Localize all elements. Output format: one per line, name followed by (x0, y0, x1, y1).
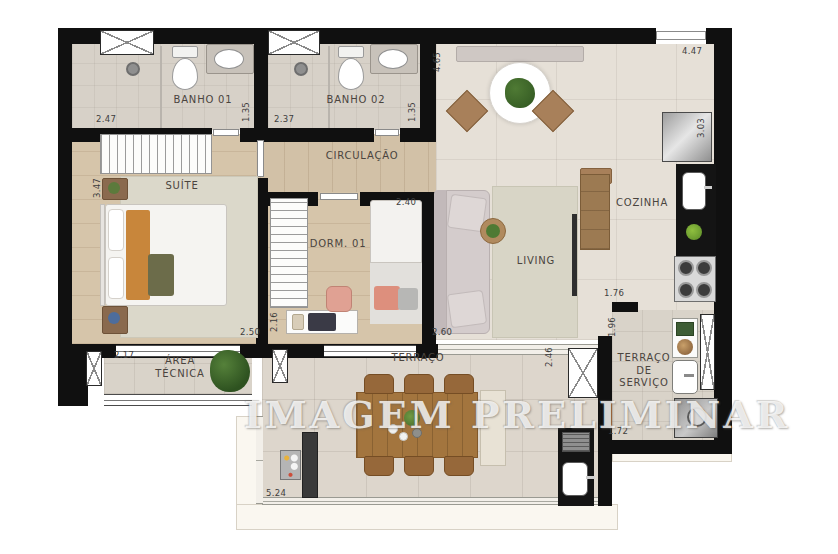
dim-suite-width: 2.50 (240, 327, 260, 337)
living-coffee-table-plant-icon (486, 224, 500, 238)
terrace-railing-bottom (262, 497, 598, 505)
suite-bed-runner-orange (126, 210, 150, 300)
stove-burner-1 (678, 260, 694, 276)
banho02-toilet-tank (338, 46, 364, 58)
wall-left (58, 28, 72, 346)
terraco-bbq-sink (562, 462, 588, 496)
banho02-shower-glass (328, 46, 330, 128)
servico-cutting-board (676, 322, 694, 336)
banho02-toilet-bowl (338, 58, 364, 90)
banho02-door (375, 129, 399, 136)
living-label: LIVING (517, 255, 555, 268)
wall-servico-bottom (612, 440, 732, 454)
suite-bed-pillow-top (108, 209, 124, 251)
banho01-shower-head-icon (126, 62, 140, 76)
preliminary-image-watermark: IMAGEM PRELIMINAR (244, 392, 724, 437)
banho02-window (268, 30, 320, 55)
dorm01-bed-pillow-gray (398, 288, 418, 310)
banho01-toilet-bowl (172, 58, 198, 90)
cozinha-stove (674, 256, 716, 302)
cozinha-label: COZINHA (616, 197, 668, 210)
living-console-bench (456, 46, 584, 62)
banho01-door (213, 129, 239, 136)
suite-nightstand-plant-icon (108, 182, 120, 194)
servico-basket-icon (677, 339, 693, 355)
dim-living-width: 2.60 (432, 327, 452, 337)
dim-suite-depth: 3.47 (92, 178, 102, 198)
dim-living-depth: 4.65 (432, 52, 442, 72)
dorm01-bed-pillow-salmon (374, 286, 400, 310)
suite-bed-pillow-olive (148, 254, 174, 296)
banho02-label: BANHO 02 (327, 94, 386, 107)
wall-right (714, 28, 732, 452)
terraco-chair-top-1 (364, 374, 394, 394)
dim-dorm01-depth: 2.16 (269, 312, 279, 332)
suite-door (257, 140, 264, 177)
area-tecnica-plant-icon (210, 350, 250, 392)
terraco-chair-bottom-1 (364, 456, 394, 476)
cozinha-sink (682, 172, 706, 210)
dim-terraco-width: 5.24 (266, 488, 286, 498)
terraco-grill-cabinet (302, 432, 318, 498)
entry-door (656, 31, 706, 40)
terrace-corner-window (272, 349, 288, 383)
banho02-shower-head-icon (294, 62, 308, 76)
terraco-label: TERRAÇO (391, 352, 444, 365)
dorm01-label: DORM. 01 (310, 238, 367, 251)
dim-banho01-depth: 1.35 (241, 102, 251, 122)
banho02-basin (378, 49, 408, 69)
area-tecnica-window (104, 394, 252, 406)
wall-banho02-living (420, 28, 436, 134)
dorm01-desk-bag (292, 314, 304, 330)
dim-banho01-width: 2.47 (96, 114, 116, 124)
dim-banho02-depth: 1.35 (407, 102, 417, 122)
dorm01-closet (270, 198, 308, 308)
terraco-bbq-faucet-icon (586, 476, 595, 479)
stove-burner-2 (696, 260, 712, 276)
living-table-plant-icon (505, 78, 535, 108)
banho01-window (100, 30, 154, 55)
wall-below-banho02 (400, 128, 436, 142)
cozinha-plant-icon (686, 224, 702, 240)
servico-tanque-faucet-icon (684, 374, 694, 377)
terraco-grill-panel (280, 450, 301, 480)
dorm01-laptop-icon (308, 313, 336, 331)
banho01-toilet-tank (172, 46, 198, 58)
dim-cozinha-side: 1.96 (607, 317, 617, 337)
dorm01-door (320, 193, 358, 200)
floor-plan: BANHO 01 BANHO 02 CIRCULAÇÃO SUÍTE DORM.… (0, 0, 838, 554)
dim-area-tecnica-width: 2.17 (114, 350, 134, 360)
wall-cozinha-servico-stub (612, 302, 638, 312)
suite-wardrobe (100, 134, 212, 174)
banho01-shower-glass (160, 46, 162, 128)
living-sofa-cushion-bottom (447, 290, 487, 329)
terraco-chair-top-3 (444, 374, 474, 394)
servico-washer-topview (700, 314, 715, 390)
banho01-label: BANHO 01 (174, 94, 233, 107)
suite-label: SUÍTE (165, 180, 198, 193)
dim-banho02-width: 2.37 (274, 114, 294, 124)
terraco-chair-top-2 (404, 374, 434, 394)
terraco-chair-bottom-2 (404, 456, 434, 476)
terrace-slab-bottom (236, 504, 618, 530)
stove-burner-4 (696, 282, 712, 298)
wall-banho-divider (254, 28, 268, 134)
suite-bed-pillow-bottom (108, 257, 124, 299)
cozinha-faucet-icon (704, 186, 712, 189)
stove-burner-3 (678, 282, 694, 298)
dim-cozinha-depth: 3.03 (696, 118, 706, 138)
banho01-basin (214, 49, 244, 69)
living-tv-panel (572, 214, 577, 296)
area-tecnica-side-window (86, 351, 102, 386)
terraco-chair-bottom-3 (444, 456, 474, 476)
dim-entry-width: 4.47 (682, 46, 702, 56)
suite-nightstand-lamp-icon (108, 312, 120, 324)
circulacao-label: CIRCULAÇÃO (326, 150, 399, 163)
servico-tanque-sink (672, 360, 698, 394)
dorm01-chair (326, 286, 352, 312)
dim-terraco-depth: 2.46 (544, 347, 554, 367)
dim-cozinha-width: 1.76 (604, 288, 624, 298)
living-tv-cabinet (580, 174, 610, 250)
dim-dorm01-width: 2.40 (396, 197, 416, 207)
area-tecnica-label: ÁREA TÉCNICA (155, 355, 204, 380)
terraco-servico-label: TERRAÇO DE SERVIÇO (617, 352, 670, 390)
terrace-servico-door (568, 348, 598, 398)
